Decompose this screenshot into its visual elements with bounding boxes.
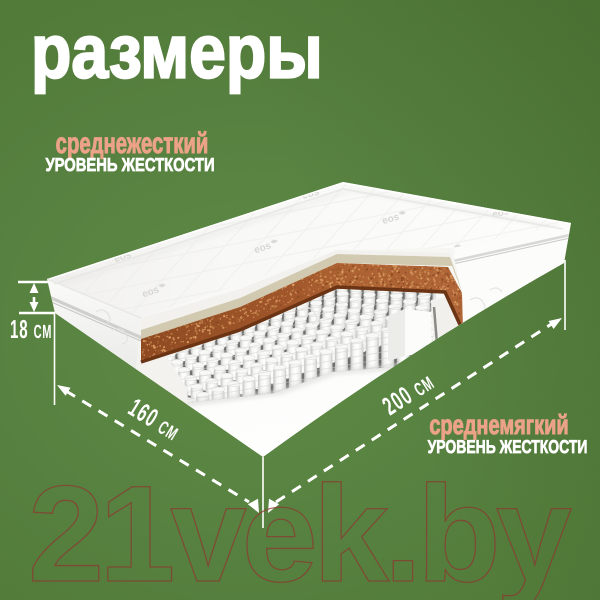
- svg-text:21vek.by: 21vek.by: [28, 458, 572, 600]
- svg-text:18 СМ: 18 СМ: [10, 314, 52, 344]
- svg-text:УРОВЕНЬ ЖЕСТКОСТИ: УРОВЕНЬ ЖЕСТКОСТИ: [45, 154, 214, 175]
- svg-text:160 СМ: 160 СМ: [123, 392, 186, 446]
- svg-text:размеры: размеры: [31, 10, 323, 95]
- svg-text:УРОВЕНЬ ЖЕСТКОСТИ: УРОВЕНЬ ЖЕСТКОСТИ: [428, 436, 588, 457]
